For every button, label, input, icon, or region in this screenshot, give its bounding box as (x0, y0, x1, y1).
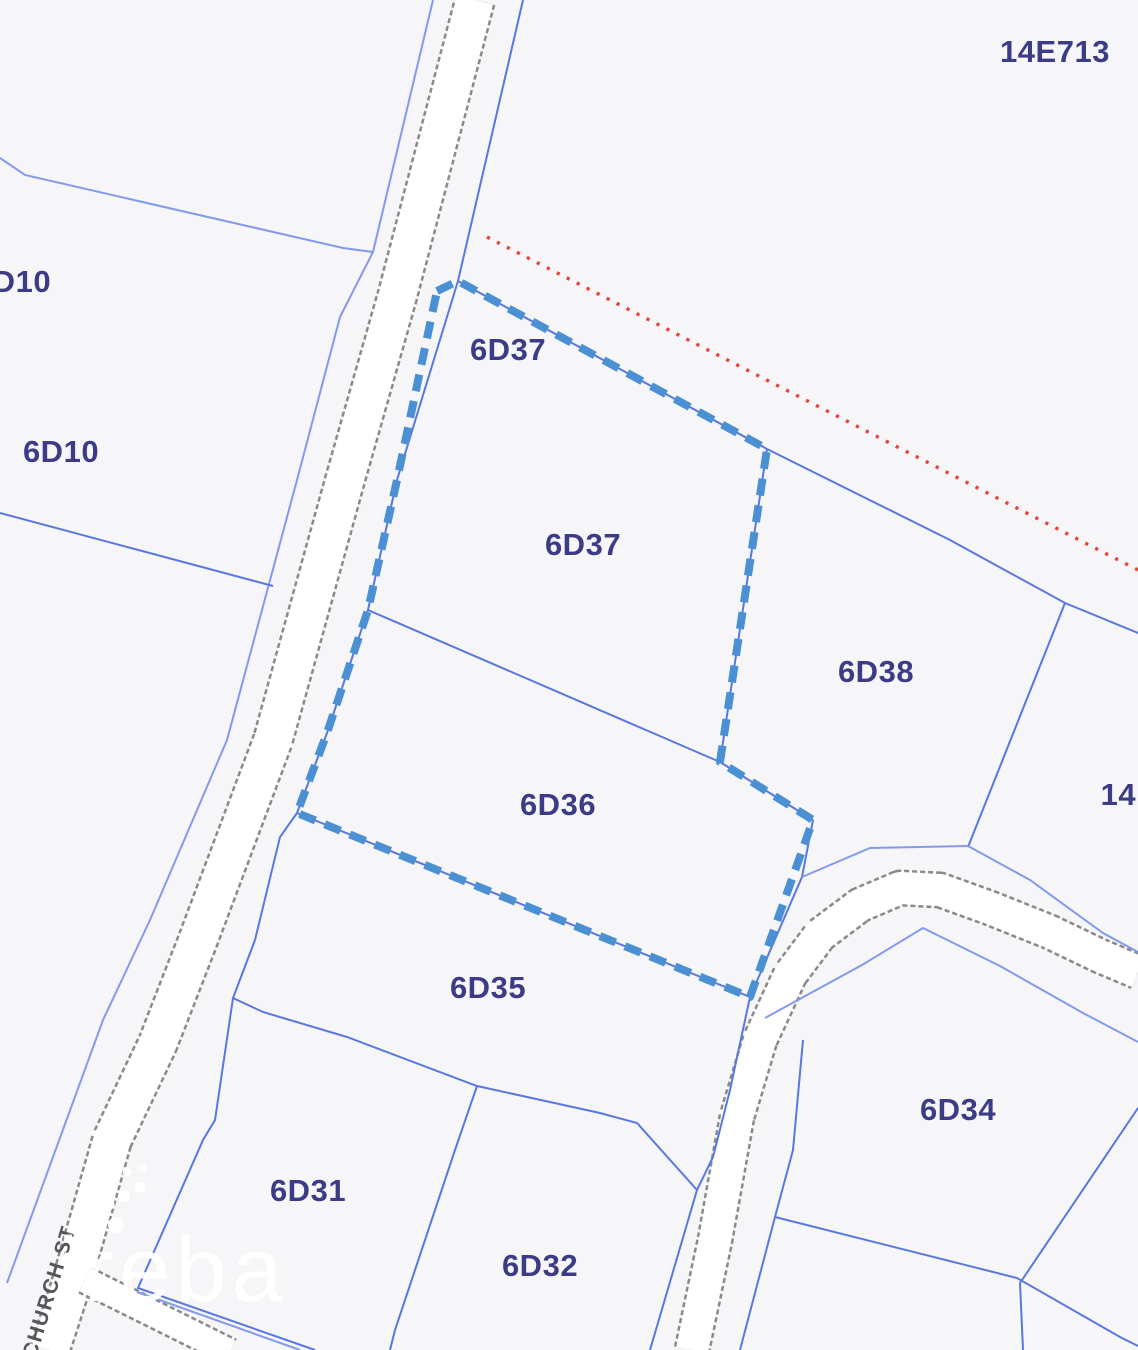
parcel-line-6d34-east (1020, 1108, 1138, 1283)
parcel-line-6d31-6d32-divider (390, 1086, 477, 1350)
parcel-label-6d38: 6D38 (838, 654, 914, 690)
parcel-label-14e713: 14E713 (1000, 34, 1110, 70)
parcel-line-6d35-south (233, 998, 697, 1190)
red-dotted-boundary (487, 237, 1138, 570)
parcel-label-6d31: 6D31 (270, 1173, 346, 1209)
parcel-line-top-left (0, 158, 373, 252)
parcel-line-6d34-south (775, 1217, 1138, 1346)
church-st-road-surface (50, 0, 475, 1350)
parcel-line-6d37-east (720, 449, 767, 762)
church-st-road (50, 0, 475, 1350)
parcel-line-6d37-6d36-divider (368, 610, 720, 762)
parcel-line-6d38-east (968, 603, 1065, 847)
parcel-line-6d10-south (0, 513, 273, 586)
map-canvas (0, 0, 1138, 1350)
cadastral-map[interactable]: 14E713 6D10 6D10 6D37 6D37 6D38 6D36 14E… (0, 0, 1138, 1350)
parcel-label-6d32: 6D32 (502, 1248, 578, 1284)
parcel-label-14e-partial: 14E (1101, 777, 1138, 813)
parcel-line-6d38-north (767, 449, 1138, 633)
parcel-label-6d37-upper: 6D37 (470, 332, 546, 368)
parcel-label-6d10: 6D10 (23, 434, 99, 470)
parcel-label-6d37: 6D37 (545, 527, 621, 563)
watermark-text: ireba (58, 1218, 288, 1323)
parcel-line-bottom-small (1020, 1283, 1023, 1350)
parcel-label-6d36: 6D36 (520, 787, 596, 823)
parcel-label-6d10-partial: 6D10 (0, 264, 51, 300)
parcel-label-6d34: 6D34 (920, 1092, 996, 1128)
parcel-label-6d35: 6D35 (450, 970, 526, 1006)
